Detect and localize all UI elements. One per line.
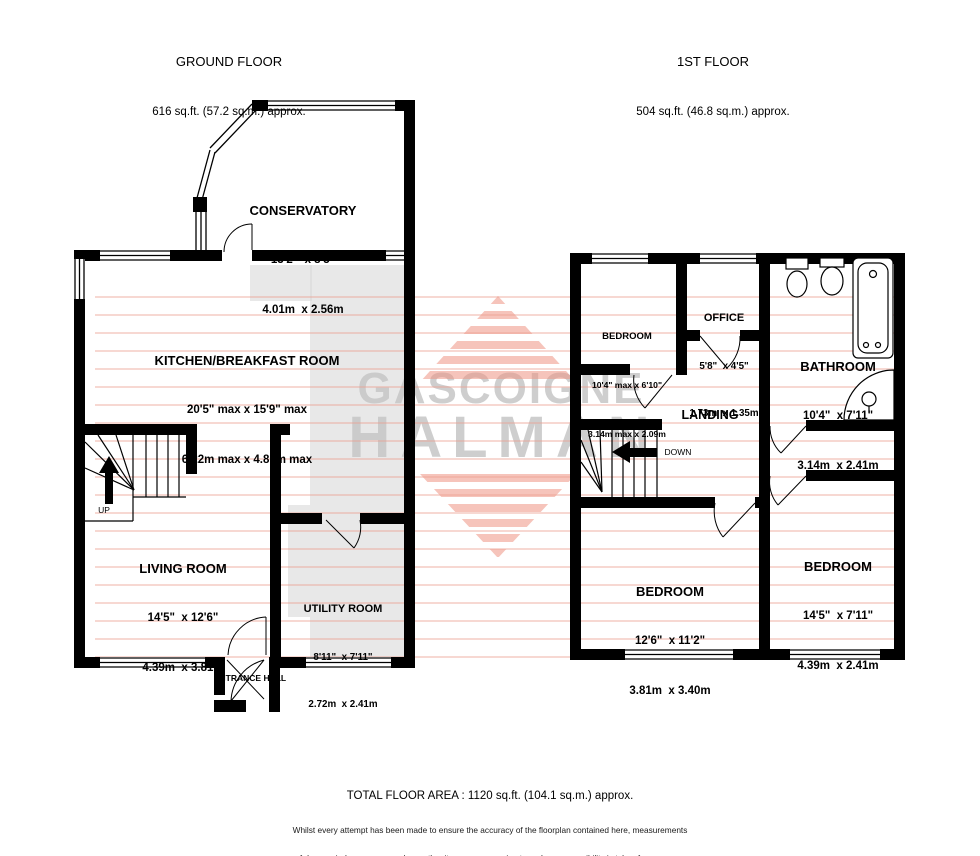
window (268, 100, 395, 111)
door-leaf-office (700, 336, 727, 368)
sink-icon (820, 258, 844, 295)
door-arc-bedroom-small (634, 375, 645, 408)
stairs-first (581, 430, 657, 497)
floorplan-page: GASCOIGNE HALMAN (0, 0, 980, 856)
door-leaf-bathroom (781, 426, 806, 453)
window (74, 259, 85, 299)
door-leaf-bedroom-small (645, 375, 672, 408)
window (197, 104, 257, 200)
floorplan-drawing (0, 0, 980, 856)
door-leaf-bedroom-mid (723, 503, 755, 537)
door-leaf-entrance (227, 660, 264, 699)
window (592, 253, 648, 264)
bathtub-icon (853, 258, 893, 358)
window (700, 253, 756, 264)
window (386, 250, 404, 261)
window (625, 649, 733, 660)
door-arc-bathroom (770, 426, 781, 453)
window (790, 649, 880, 660)
bathroom-fixtures (786, 258, 894, 420)
ground-floor-walls (74, 100, 415, 712)
window (100, 657, 205, 668)
window (100, 250, 170, 261)
window (306, 657, 391, 668)
window (196, 212, 206, 250)
stairs-ground (85, 435, 186, 521)
shower-icon (844, 370, 894, 420)
door-arc-utility (354, 520, 361, 548)
door-arc-bedroom-mid (714, 503, 723, 537)
door-leaf-bedroom-large (778, 476, 806, 505)
ground-floor-windows (74, 100, 404, 668)
door-arc-office (727, 336, 740, 368)
door-arc-conservatory (224, 224, 252, 252)
door-leaf-utility (326, 520, 354, 548)
door-arc-bedroom-large (770, 476, 778, 505)
door-arc-hall-living (228, 617, 266, 655)
ground-floor-doors (224, 224, 361, 701)
toilet-icon (786, 258, 808, 297)
